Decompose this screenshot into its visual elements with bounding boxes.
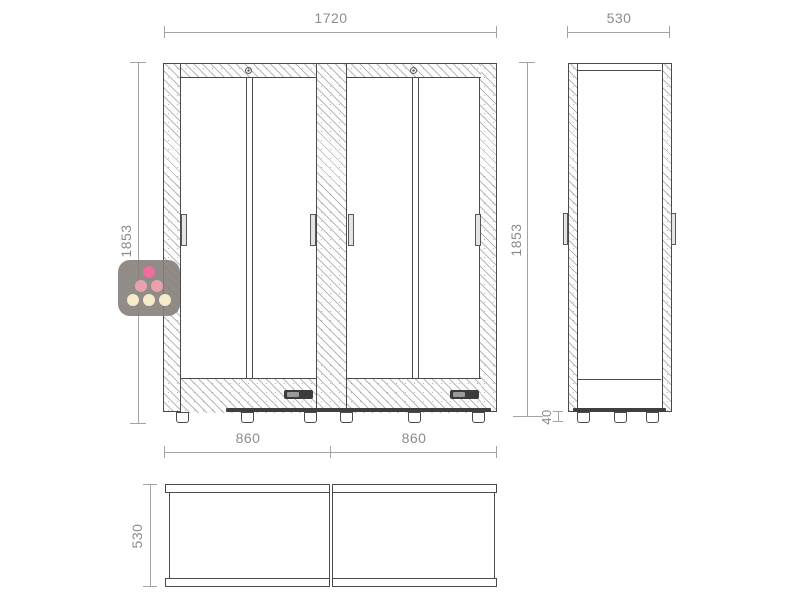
door-lock-icon xyxy=(410,67,417,74)
side-back-post xyxy=(662,64,671,411)
side-door-bottom-line xyxy=(578,379,661,380)
side-view xyxy=(568,63,672,412)
dim-front-height-label: 1853 xyxy=(118,216,134,266)
side-top-rail xyxy=(578,64,661,71)
foot xyxy=(408,412,421,423)
door-handle xyxy=(475,214,481,246)
logo-dot xyxy=(135,280,147,292)
logo-dot xyxy=(151,280,163,292)
door-lock-icon xyxy=(245,67,252,74)
foot xyxy=(304,412,317,423)
control-panel-display xyxy=(284,390,313,399)
control-screen xyxy=(287,392,299,397)
foot xyxy=(340,412,353,423)
door-handle xyxy=(310,214,316,246)
dim-feet-height-label: 40 xyxy=(539,405,555,429)
logo-dot xyxy=(143,266,155,278)
foot xyxy=(472,412,485,423)
control-panel-display xyxy=(450,390,479,399)
foot xyxy=(241,412,254,423)
front-right-wall xyxy=(479,64,496,411)
side-front-post xyxy=(569,64,578,411)
dim-side-height-label: 1853 xyxy=(508,215,524,265)
door-handle xyxy=(348,214,354,246)
door-handle-side xyxy=(671,213,676,245)
control-screen xyxy=(453,392,465,397)
plan-center-divider xyxy=(329,484,333,587)
dim-unit-right-label: 860 xyxy=(364,430,464,446)
door-handle xyxy=(181,214,187,246)
dim-unit-left-label: 860 xyxy=(198,430,298,446)
front-left-wall xyxy=(164,64,181,411)
foot xyxy=(614,412,627,423)
dim-total-width-label: 1720 xyxy=(281,10,381,26)
drawing-sheet: 1720 530 1853 1853 40 860 860 xyxy=(0,0,800,600)
foot xyxy=(577,412,590,423)
foot xyxy=(646,412,659,423)
door-stile xyxy=(418,78,419,378)
door-handle-side xyxy=(563,213,568,245)
front-center-divider xyxy=(316,64,347,411)
foot xyxy=(176,412,189,423)
front-view xyxy=(163,63,497,412)
logo-dot xyxy=(159,294,171,306)
logo-dot xyxy=(127,294,139,306)
door-stile xyxy=(412,78,413,378)
logo-dot xyxy=(143,294,155,306)
door-stile xyxy=(252,78,253,378)
dim-plan-depth-label: 530 xyxy=(129,511,145,561)
wine-cabinet-brand-logo-icon xyxy=(118,260,180,316)
dim-side-width-label: 530 xyxy=(569,10,669,26)
front-base-strip xyxy=(226,408,491,412)
door-stile xyxy=(246,78,247,378)
